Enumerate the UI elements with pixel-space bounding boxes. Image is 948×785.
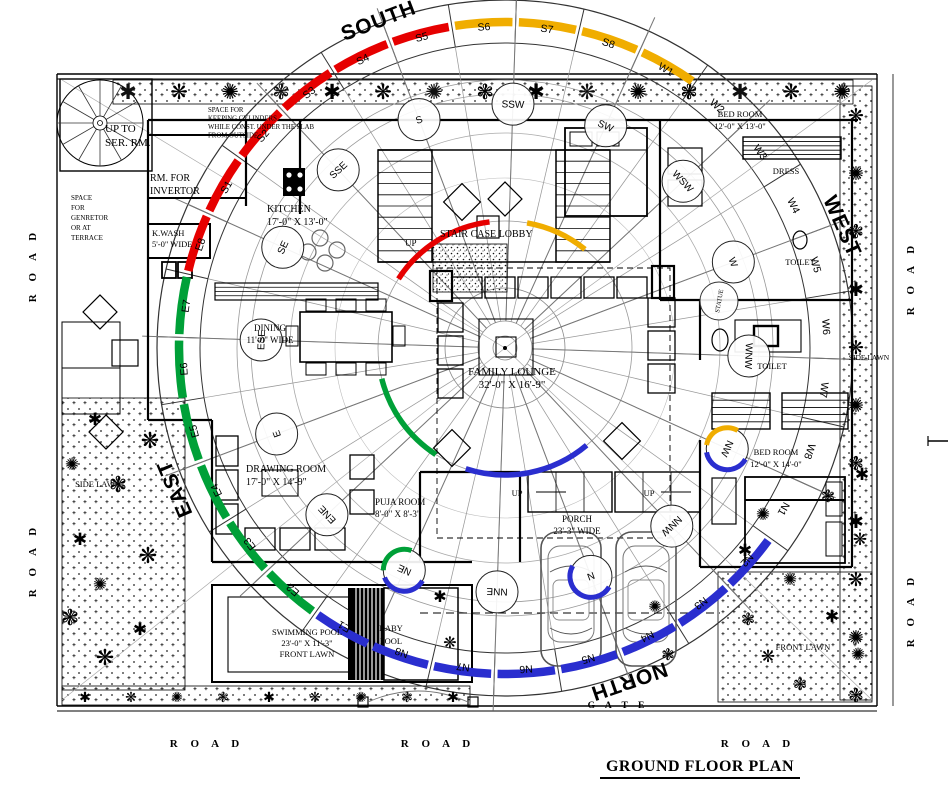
road-label: R O A D (401, 738, 475, 750)
segment-label-E6: E6 (178, 362, 191, 376)
room-label-line: DRESS (773, 166, 800, 176)
room-label-line: BABY (379, 623, 403, 633)
gate-label: G A T E (588, 701, 649, 711)
room-label-line: FRONT LAWN (280, 649, 335, 659)
dining-band (215, 283, 378, 300)
room-label-up-to-ser-rm: UP TOSER. RM. (105, 123, 151, 149)
room-label-line: PUJA ROOM (375, 497, 425, 507)
tree-icon: ❃ (476, 80, 494, 104)
room-label-line: TOILET (757, 361, 787, 371)
room-label-line: PORCH (562, 514, 593, 524)
tree-icon: ✱ (848, 279, 864, 301)
direction-circle-ENE: ENE (306, 494, 348, 536)
segment-label-N6: N6 (519, 662, 533, 675)
room-label-line: TERRACE (71, 234, 103, 242)
room-label-line: DINING (254, 323, 286, 333)
tree-icon: ✺ (221, 80, 239, 104)
room-label-line: 23'-0" X 11'-3" (281, 638, 332, 648)
room-label-stair-case-lobby: STAIR CASE LOBBY (440, 229, 533, 240)
tree-icon: ✺ (355, 690, 367, 706)
tree-icon: ❃ (793, 675, 807, 695)
room-label-line: SPACE (71, 194, 92, 202)
direction-label-NNE: NNE (486, 585, 508, 597)
room-label-line: 5'-0" WIDE (152, 239, 193, 249)
room-label-line: FOR (71, 204, 85, 212)
room-label-generator-note: SPACEFORGENRETOROR ATTERRACE (71, 194, 109, 242)
room-label-puja-room: PUJA ROOM8'-0" X 8'-3" (375, 497, 425, 519)
room-label-line: TOILET (785, 257, 815, 267)
tree-icon: ✺ (648, 597, 661, 616)
tree-icon: ✺ (848, 163, 864, 185)
tree-icon: ❋ (578, 80, 596, 104)
stove-icon (283, 168, 305, 196)
room-label-kitchen: KITCHEN17'-0" X 13'-0" (267, 204, 328, 228)
tree-icon: ✱ (433, 587, 446, 606)
direction-circle-NNW: NNW (651, 505, 693, 547)
dining-furniture (286, 299, 405, 375)
segment-label-W6: W6 (819, 319, 832, 336)
tree-icon: ✱ (731, 80, 749, 104)
room-label-line: RM. FOR (150, 173, 190, 184)
road-label: R O A D (905, 241, 917, 315)
tree-icon: ❃ (821, 487, 835, 507)
room-label-family-lounge: FAMILY LOUNGE32'-0" X 16'-9" (468, 366, 556, 391)
tree-icon: ✺ (629, 80, 647, 104)
segment-label-W4: W4 (784, 196, 802, 216)
drawing-title-text: GROUND FLOOR PLAN (600, 758, 800, 779)
tree-icon: ✱ (855, 465, 869, 485)
room-label-line: 11'-0" WIDE (246, 335, 294, 345)
tree-icon: ❃ (401, 690, 413, 706)
tree-icon: ❋ (848, 569, 864, 591)
tree-icon: ❋ (125, 690, 137, 706)
tree-icon: ❋ (139, 544, 157, 569)
stairs (378, 150, 610, 292)
room-label-line: K.WASH (152, 228, 184, 238)
room-label-line: BED ROOM (718, 109, 763, 119)
tree-icon: ✺ (756, 505, 770, 525)
tree-icon: ✱ (323, 80, 341, 104)
room-label-line: SIDE LAWN (849, 353, 890, 362)
room-label-line: 17'-0" X 13'-0" (267, 217, 328, 228)
tree-icon: ❋ (443, 633, 456, 652)
tree-icon: ✺ (93, 575, 107, 595)
room-label-rm-for-invertor: RM. FORINVERTOR (150, 173, 200, 197)
room-label-line: UP (405, 238, 417, 248)
room-label-line: 32'-0" X 16'-9" (479, 379, 546, 391)
tree-icon: ✺ (171, 690, 183, 706)
tree-icon: ❋ (141, 429, 159, 454)
drawing-title: GROUND FLOOR PLAN (570, 758, 830, 776)
room-label-toilet-1: TOILET (785, 257, 815, 267)
room-label-line: UP (644, 488, 655, 498)
room-label-dress: DRESS (773, 166, 800, 176)
tree-icon: ✱ (263, 690, 275, 706)
room-label-up-stair: UP (405, 238, 417, 248)
tree-icon: ❋ (170, 80, 188, 104)
room-label-line: BED ROOM (754, 447, 799, 457)
room-label-front-lawn: FRONT LAWN (776, 642, 831, 652)
room-label-swimming-pool: SWIMMING POOL23'-0" X 11'-3"FRONT LAWN (272, 627, 342, 659)
direction-circle-NW: NW (706, 428, 748, 470)
beds (565, 128, 845, 563)
direction-circle-NE: NE (383, 549, 425, 591)
room-label-line: WHILE CONST. UNDER THE SLAB (208, 124, 315, 131)
tree-icon: ✺ (848, 395, 864, 417)
tree-icon: ✱ (88, 410, 102, 430)
room-label-up-porch-right: UP (644, 488, 655, 498)
road-label: R O A D (170, 738, 244, 750)
tree-icon: ❋ (761, 647, 775, 667)
tree-icon: ✱ (79, 690, 91, 706)
direction-circle-SSE: SSE (317, 149, 359, 191)
direction-circle-NNE: NNE (476, 571, 518, 613)
direction-circle-SW: SW (585, 105, 627, 147)
direction-circle-N: N (570, 555, 612, 597)
segment-label-S8: S8 (600, 36, 616, 52)
room-label-line: FRONT LAWN (776, 642, 831, 652)
segment-label-N1: N1 (775, 500, 792, 518)
tree-icon: ❃ (217, 690, 229, 706)
tree-icon: ❋ (309, 690, 321, 706)
segment-label-E7: E7 (180, 299, 194, 313)
tree-icon: ❋ (96, 646, 114, 671)
ground-floor-plan: ✱❋✺❃✱❋✺❃✱❋✺❃✱❋✺❋✺❃✱❋✺❃✱❋✺❃✱❋✺❃✱❋✺❃✱❋✱❋✺❃… (0, 0, 948, 785)
tree-icon: ❋ (782, 80, 800, 104)
tree-icon: ✱ (133, 620, 147, 640)
road-label: R O A D (721, 738, 795, 750)
tree-icon: ❋ (848, 105, 864, 127)
room-label-line: SWIMMING POOL (272, 627, 342, 637)
statue-circle: STATUE (700, 282, 738, 320)
room-label-line: GENRETOR (71, 214, 109, 222)
lounge-dashed-boundary (437, 268, 670, 538)
room-label-line: OR AT (71, 224, 91, 232)
tree-icon: ✱ (825, 607, 839, 627)
room-label-side-lawn-right: SIDE LAWN (849, 353, 890, 362)
tree-icon: ✱ (119, 80, 137, 104)
room-label-line: FAMILY LOUNGE (468, 366, 556, 378)
segment-label-E8: E8 (193, 237, 209, 253)
room-label-side-lawn-left: SIDE LAWN (75, 479, 121, 489)
room-label-line: STAIR CASE LOBBY (440, 229, 533, 240)
segment-label-N7: N7 (455, 660, 470, 674)
room-label-line: 8'-0" X 8'-3" (375, 509, 421, 519)
room-label-line: INVERTOR (150, 186, 200, 197)
room-label-line: UP (512, 488, 523, 498)
segment-label-S7: S7 (540, 23, 554, 37)
room-label-bed-room-right: BED ROOM12'-0" X 14'-0" (750, 447, 802, 469)
tree-icon: ✱ (73, 530, 87, 550)
room-label-up-porch-left: UP (512, 488, 523, 498)
tree-icon: ❃ (61, 606, 79, 631)
room-label-line: 23'-3" WIDE (553, 526, 601, 536)
room-label-line: SIDE LAWN (75, 479, 121, 489)
tree-icon: ❃ (741, 610, 755, 630)
room-label-toilet-2: TOILET (757, 361, 787, 371)
direction-circle-E: E (256, 413, 298, 455)
tree-icon: ✺ (65, 455, 79, 475)
direction-label-WNW: WNW (742, 343, 754, 370)
room-label-line: SER. RM. (105, 137, 151, 149)
floor-plan-svg: ✱❋✺❃✱❋✺❃✱❋✺❃✱❋✺❋✺❃✱❋✺❃✱❋✺❃✱❋✺❃✱❋✺❃✱❋✱❋✺❃… (0, 0, 948, 785)
room-label-line: 12'-0" X 13'-0" (714, 121, 766, 131)
segment-label-W7: W7 (817, 381, 831, 398)
room-label-line: POOL (380, 636, 402, 646)
tree-icon: ✱ (447, 690, 459, 706)
room-label-line: DRAWING ROOM (246, 464, 326, 475)
segment-label-W8: W8 (801, 442, 817, 461)
tree-icon: ✺ (833, 80, 851, 104)
direction-label-SSW: SSW (501, 99, 525, 111)
tree-icon: ❋ (853, 530, 867, 550)
room-label-k-wash: K.WASH5'-0" WIDE (152, 228, 193, 249)
road-label: R O A D (905, 573, 917, 647)
room-label-line: SPACE FOR (208, 107, 244, 114)
big-label-north: NORTH (588, 657, 671, 705)
room-label-line: FROM OUTSIDE (208, 133, 258, 140)
room-label-line: 17'-0" X 14'-9" (246, 477, 307, 488)
room-label-line: KITCHEN (267, 204, 311, 215)
road-label: R O A D (27, 228, 39, 302)
tree-icon: ❃ (848, 685, 864, 707)
direction-circle-SE: SE (262, 226, 304, 268)
direction-circle-WSW: WSW (662, 160, 704, 202)
tree-icon: ✺ (783, 570, 797, 590)
room-label-line: KEEPING CYLINDERS (208, 116, 277, 123)
tree-icon: ❋ (374, 80, 392, 104)
segment-label-S6: S6 (477, 21, 491, 34)
tree-icon: ✺ (851, 645, 865, 665)
road-label: R O A D (27, 523, 39, 597)
direction-circle-S: S (398, 99, 440, 141)
direction-circle-SSW: SSW (492, 83, 534, 125)
room-label-line: 12'-0" X 14'-0" (750, 459, 802, 469)
room-label-line: UP TO (105, 123, 136, 135)
room-label-porch: PORCH23'-3" WIDE (553, 514, 601, 536)
direction-circle-W: W (712, 241, 754, 283)
